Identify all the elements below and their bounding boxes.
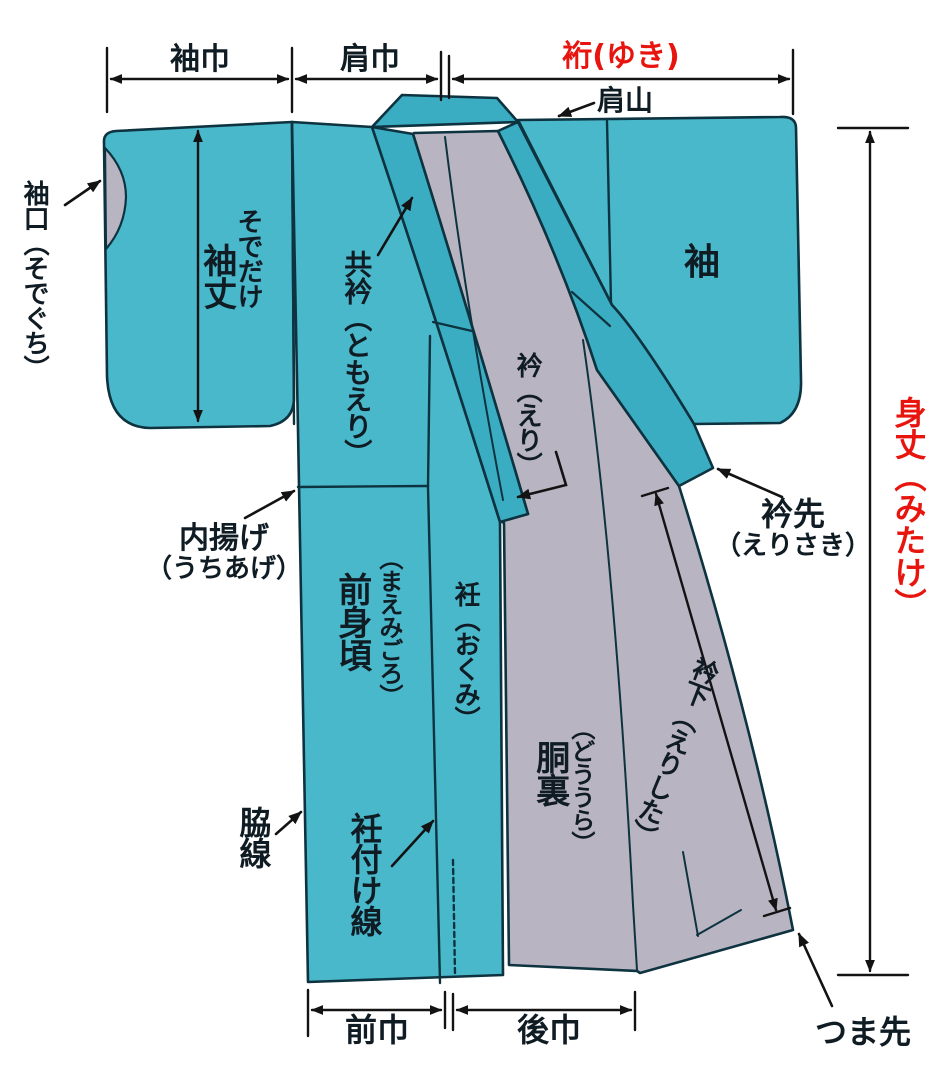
label-waki-sen: 脇線: [236, 806, 271, 868]
label-erisaki-main: 衿先: [715, 497, 871, 532]
leader-tsumasaki: [799, 934, 832, 1006]
leader-erisaki: [718, 469, 782, 497]
label-uchiage-kana: （うちあげ）: [146, 555, 302, 583]
kimono-diagram: 袖巾 肩巾 裄(ゆき) 肩山 袖口（そでぐち） 袖丈 そでだけ 共衿（ともえり）…: [0, 0, 950, 1080]
label-do-ura-kana: （どううら）: [567, 716, 593, 854]
dim-label-kata-haba: 肩巾: [340, 44, 400, 76]
leader-katayama: [559, 103, 594, 116]
label-sode-take-kana: そでだけ: [234, 208, 262, 308]
label-tsuma-saki: つま先: [815, 1015, 911, 1050]
label-okumi-tsuke-sen: 衽付け線: [347, 812, 382, 936]
leader-wakisen: [276, 812, 301, 834]
dim-label-sode-haba: 袖巾: [170, 44, 230, 76]
label-mitake: 身丈（みたけ）: [891, 396, 926, 620]
label-eri: 衿（えり）: [513, 352, 541, 477]
uchiage-seam: [298, 486, 428, 487]
label-kata-yama: 肩山: [597, 86, 653, 116]
label-uchiage: 内揚げ （うちあげ）: [146, 523, 302, 583]
label-erisaki: 衿先 （えりさき）: [715, 497, 871, 560]
label-tomoeri: 共衿（ともえり）: [341, 250, 371, 466]
dim-label-mae-haba: 前巾: [345, 1013, 409, 1048]
label-sode-guchi: 袖口（そでぐち）: [20, 180, 48, 380]
collar-peak: [372, 95, 518, 127]
label-mae-migoro-kana: （まえみごろ）: [375, 546, 401, 707]
label-sode: 袖: [684, 244, 720, 283]
label-uchiage-main: 内揚げ: [146, 523, 302, 555]
label-erisaki-kana: （えりさき）: [715, 532, 871, 560]
label-sode-take: 袖丈: [198, 243, 235, 309]
leader-sodeguchi: [65, 181, 100, 205]
dim-label-yuki: 裄(ゆき): [562, 41, 679, 73]
label-okumi: 衽（おくみ）: [451, 581, 479, 731]
leader-uchiage: [245, 491, 294, 518]
label-do-ura: 胴裏: [531, 740, 568, 806]
dim-label-ushiro-haba: 後巾: [517, 1013, 581, 1048]
label-mae-migoro: 前身頃: [333, 572, 370, 671]
